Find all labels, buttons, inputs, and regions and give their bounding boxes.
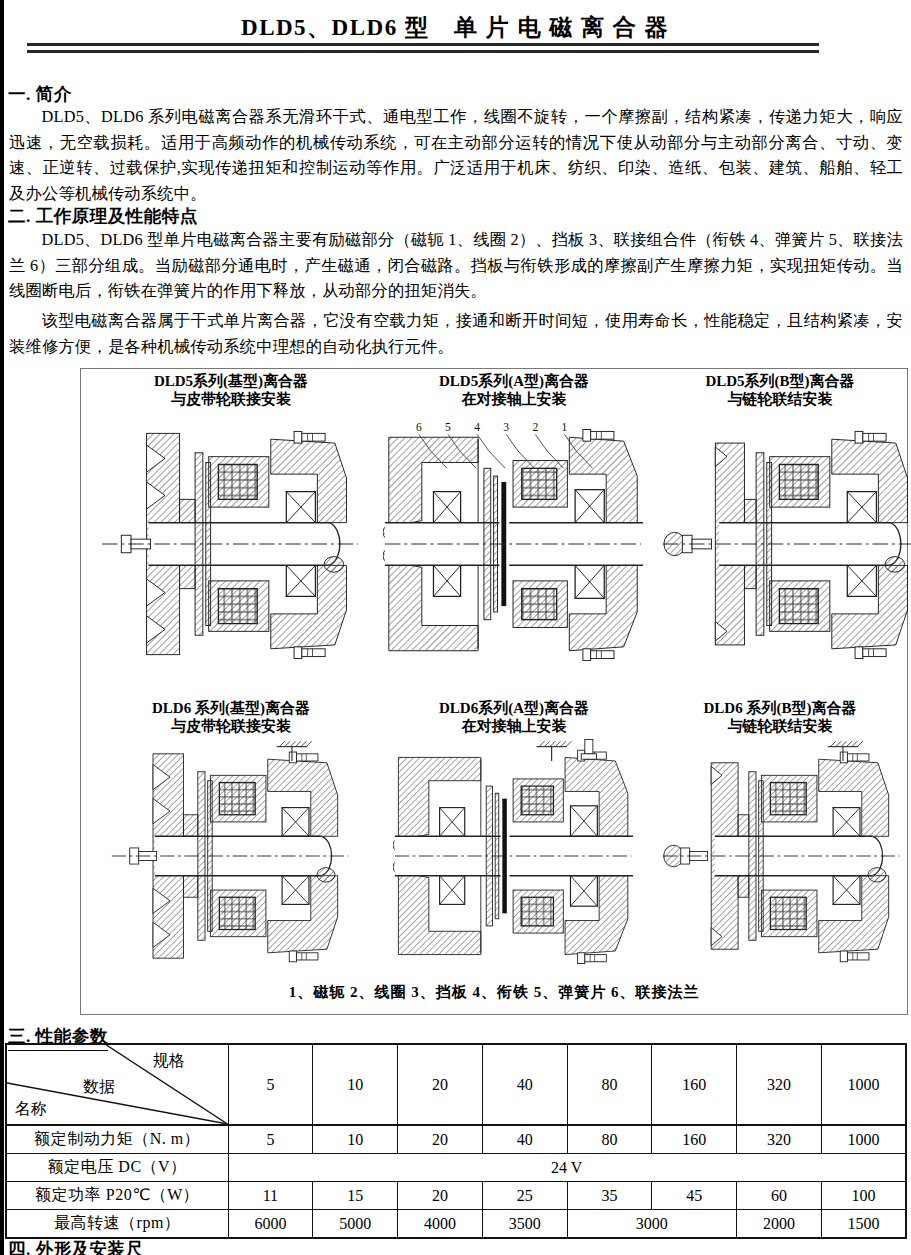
svg-text:5: 5 (445, 421, 451, 434)
figure-panel: DLD5系列(基型)离合器 与皮带轮联接安装 DLD5系列(A型)离合器 在对接… (80, 368, 908, 1015)
param-value: 5 (228, 1125, 313, 1154)
figure-cell-dld6-a: DLD6系列(A型)离合器 在对接轴上安装 (373, 699, 655, 975)
param-value: 20 (398, 1125, 483, 1154)
spec-col-header: 20 (398, 1044, 483, 1125)
figure-caption: DLD6 系列(B型)离合器 与链轮联结安装 (661, 699, 899, 735)
figure-legend: 1、磁轭 2、线圈 3、挡板 4、衔铁 5、弹簧片 6、联接法兰 (81, 983, 907, 1002)
clutch-drawing-dld5-a: 654321 (383, 410, 645, 678)
section-1-heading: 一. 简介 (8, 82, 72, 106)
figure-caption: DLD5系列(基型)离合器 与皮带轮联接安装 (91, 372, 371, 408)
figure-caption-line1: DLD6 系列(B型)离合器 (661, 699, 899, 717)
svg-text:6: 6 (416, 421, 422, 434)
clutch-drawing-dld5-base (100, 410, 362, 678)
table-row-voltage: 额定电压 DC（V） 24 V (6, 1154, 906, 1182)
param-value: 25 (482, 1182, 567, 1210)
param-value: 45 (652, 1182, 737, 1210)
param-value: 6000 (228, 1210, 313, 1239)
clutch-drawing-dld5-b (661, 410, 911, 678)
svg-text:4: 4 (474, 421, 480, 434)
svg-text:2: 2 (532, 421, 538, 434)
spec-col-header: 10 (313, 1044, 398, 1125)
param-value: 3000 (567, 1210, 737, 1239)
param-value: 160 (652, 1125, 737, 1154)
param-label: 最高转速（rpm） (6, 1210, 228, 1239)
param-value: 80 (567, 1125, 652, 1154)
figure-cell-dld5-a: DLD5系列(A型)离合器 在对接轴上安装 654321 (373, 372, 655, 678)
figure-cell-dld6-b: DLD6 系列(B型)离合器 与链轮联结安装 (661, 699, 899, 975)
spec-col-header: 80 (567, 1044, 652, 1125)
param-value: 10 (313, 1125, 398, 1154)
performance-table: 规格 数据 名称 5 10 20 40 80 160 320 1000 额定制动… (5, 1043, 907, 1239)
param-value: 3500 (482, 1210, 567, 1239)
figure-cell-dld5-base: DLD5系列(基型)离合器 与皮带轮联接安装 (91, 372, 371, 678)
section-2-heading: 二. 工作原理及性能特点 (8, 204, 198, 228)
figure-cell-dld5-b: DLD5系列(B型)离合器 与链轮联结安装 (661, 372, 899, 678)
figure-caption-line2: 与皮带轮联接安装 (91, 390, 371, 408)
table-header-row: 规格 数据 名称 5 10 20 40 80 160 320 1000 (6, 1044, 906, 1125)
corner-label-spec: 规格 (153, 1051, 185, 1072)
page-title: DLD5、DLD6 型 单 片 电 磁 离 合 器 (10, 12, 900, 43)
figure-caption-line1: DLD6 系列(基型)离合器 (91, 699, 371, 717)
figure-caption-line1: DLD5系列(A型)离合器 (373, 372, 655, 390)
param-value: 11 (228, 1182, 313, 1210)
figure-caption: DLD6 系列(基型)离合器 与皮带轮联接安装 (91, 699, 371, 735)
clutch-drawing-dld6-a (393, 737, 635, 975)
title-rule-top (27, 43, 819, 46)
table-row-torque: 额定制动力矩（N. m） 5 10 20 40 80 160 320 1000 (6, 1125, 906, 1154)
param-value: 4000 (398, 1210, 483, 1239)
spec-col-header: 40 (482, 1044, 567, 1125)
param-label: 额定功率 P20℃（W） (6, 1182, 228, 1210)
param-value: 100 (821, 1182, 906, 1210)
svg-text:3: 3 (503, 421, 509, 434)
param-value: 60 (737, 1182, 822, 1210)
figure-caption: DLD5系列(B型)离合器 与链轮联结安装 (661, 372, 899, 408)
spec-col-header: 1000 (821, 1044, 906, 1125)
svg-text:1: 1 (562, 421, 568, 434)
figure-caption-line1: DLD5系列(B型)离合器 (661, 372, 899, 390)
param-value: 20 (398, 1182, 483, 1210)
spec-col-header: 160 (652, 1044, 737, 1125)
param-value: 15 (313, 1182, 398, 1210)
param-value: 320 (737, 1125, 822, 1154)
param-value: 24 V (228, 1154, 906, 1182)
title-rule-bottom (27, 50, 819, 53)
section-4-heading: 四. 外形及安装尺 (8, 1237, 144, 1255)
table-row-speed: 最高转速（rpm） 6000 5000 4000 3500 3000 2000 … (6, 1210, 906, 1239)
corner-label-name: 名称 (15, 1099, 47, 1120)
param-label: 额定制动力矩（N. m） (6, 1125, 228, 1154)
figure-caption-line2: 在对接轴上安装 (373, 717, 655, 735)
page-left-edge (0, 0, 4, 1255)
figure-caption: DLD6系列(A型)离合器 在对接轴上安装 (373, 699, 655, 735)
param-value: 5000 (313, 1210, 398, 1239)
table-corner-cell: 规格 数据 名称 (6, 1044, 228, 1125)
figure-caption-line2: 与链轮联结安装 (661, 717, 899, 735)
param-value: 1500 (821, 1210, 906, 1239)
figure-caption-line1: DLD5系列(基型)离合器 (91, 372, 371, 390)
figure-cell-dld6-base: DLD6 系列(基型)离合器 与皮带轮联接安装 (91, 699, 371, 975)
section-2-paragraph-2: 该型电磁离合器属于干式单片离合器，它没有空载力矩，接通和断开时间短，使用寿命长，… (9, 308, 903, 359)
param-value: 1000 (821, 1125, 906, 1154)
clutch-drawing-dld6-base (110, 737, 352, 975)
table-row-power: 额定功率 P20℃（W） 11 15 20 25 35 45 60 100 (6, 1182, 906, 1210)
param-value: 40 (482, 1125, 567, 1154)
figure-caption: DLD5系列(A型)离合器 在对接轴上安装 (373, 372, 655, 408)
figure-caption-line2: 在对接轴上安装 (373, 390, 655, 408)
spec-col-header: 5 (228, 1044, 313, 1125)
figure-caption-line2: 与皮带轮联接安装 (91, 717, 371, 735)
clutch-drawing-dld6-b (661, 737, 903, 975)
param-value: 2000 (737, 1210, 822, 1239)
spec-col-header: 320 (737, 1044, 822, 1125)
figure-caption-line2: 与链轮联结安装 (661, 390, 899, 408)
section-1-paragraph: DLD5、DLD6 系列电磁离合器系无滑环干式、通电型工作，线圈不旋转，一个摩擦… (9, 104, 903, 206)
section-2-paragraph-1: DLD5、DLD6 型单片电磁离合器主要有励磁部分（磁轭 1、线圈 2）、挡板 … (9, 227, 903, 304)
param-value: 35 (567, 1182, 652, 1210)
figure-caption-line1: DLD6系列(A型)离合器 (373, 699, 655, 717)
corner-label-data: 数据 (83, 1077, 115, 1098)
param-label: 额定电压 DC（V） (6, 1154, 228, 1182)
